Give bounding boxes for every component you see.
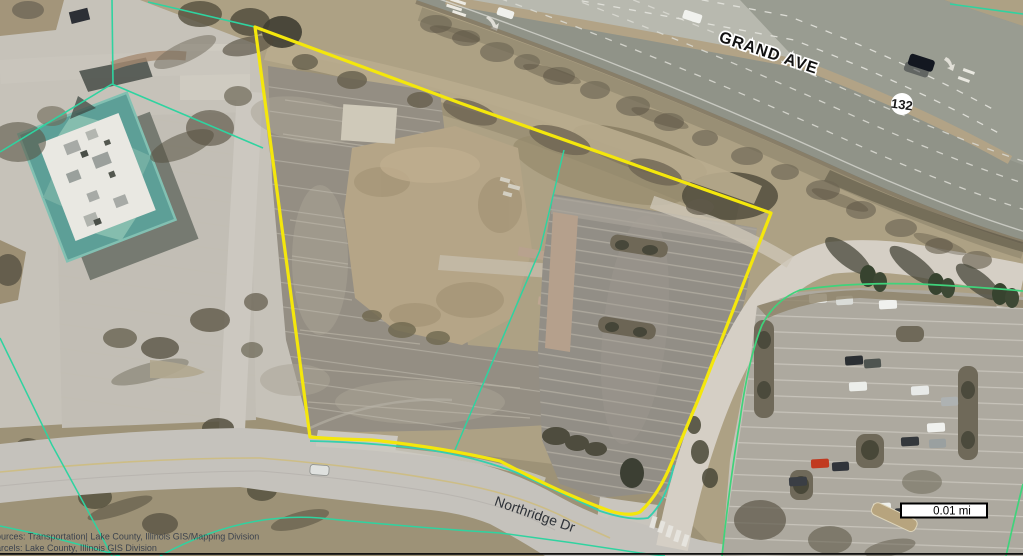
svg-text:132: 132 <box>890 96 914 114</box>
svg-text:Parcels: Lake County, Illinois: Parcels: Lake County, Illinois GIS Divis… <box>0 543 157 553</box>
svg-text:0.01 mi: 0.01 mi <box>933 506 971 518</box>
svg-text:Sources: Transportation| Lake: Sources: Transportation| Lake County, Il… <box>0 532 259 542</box>
